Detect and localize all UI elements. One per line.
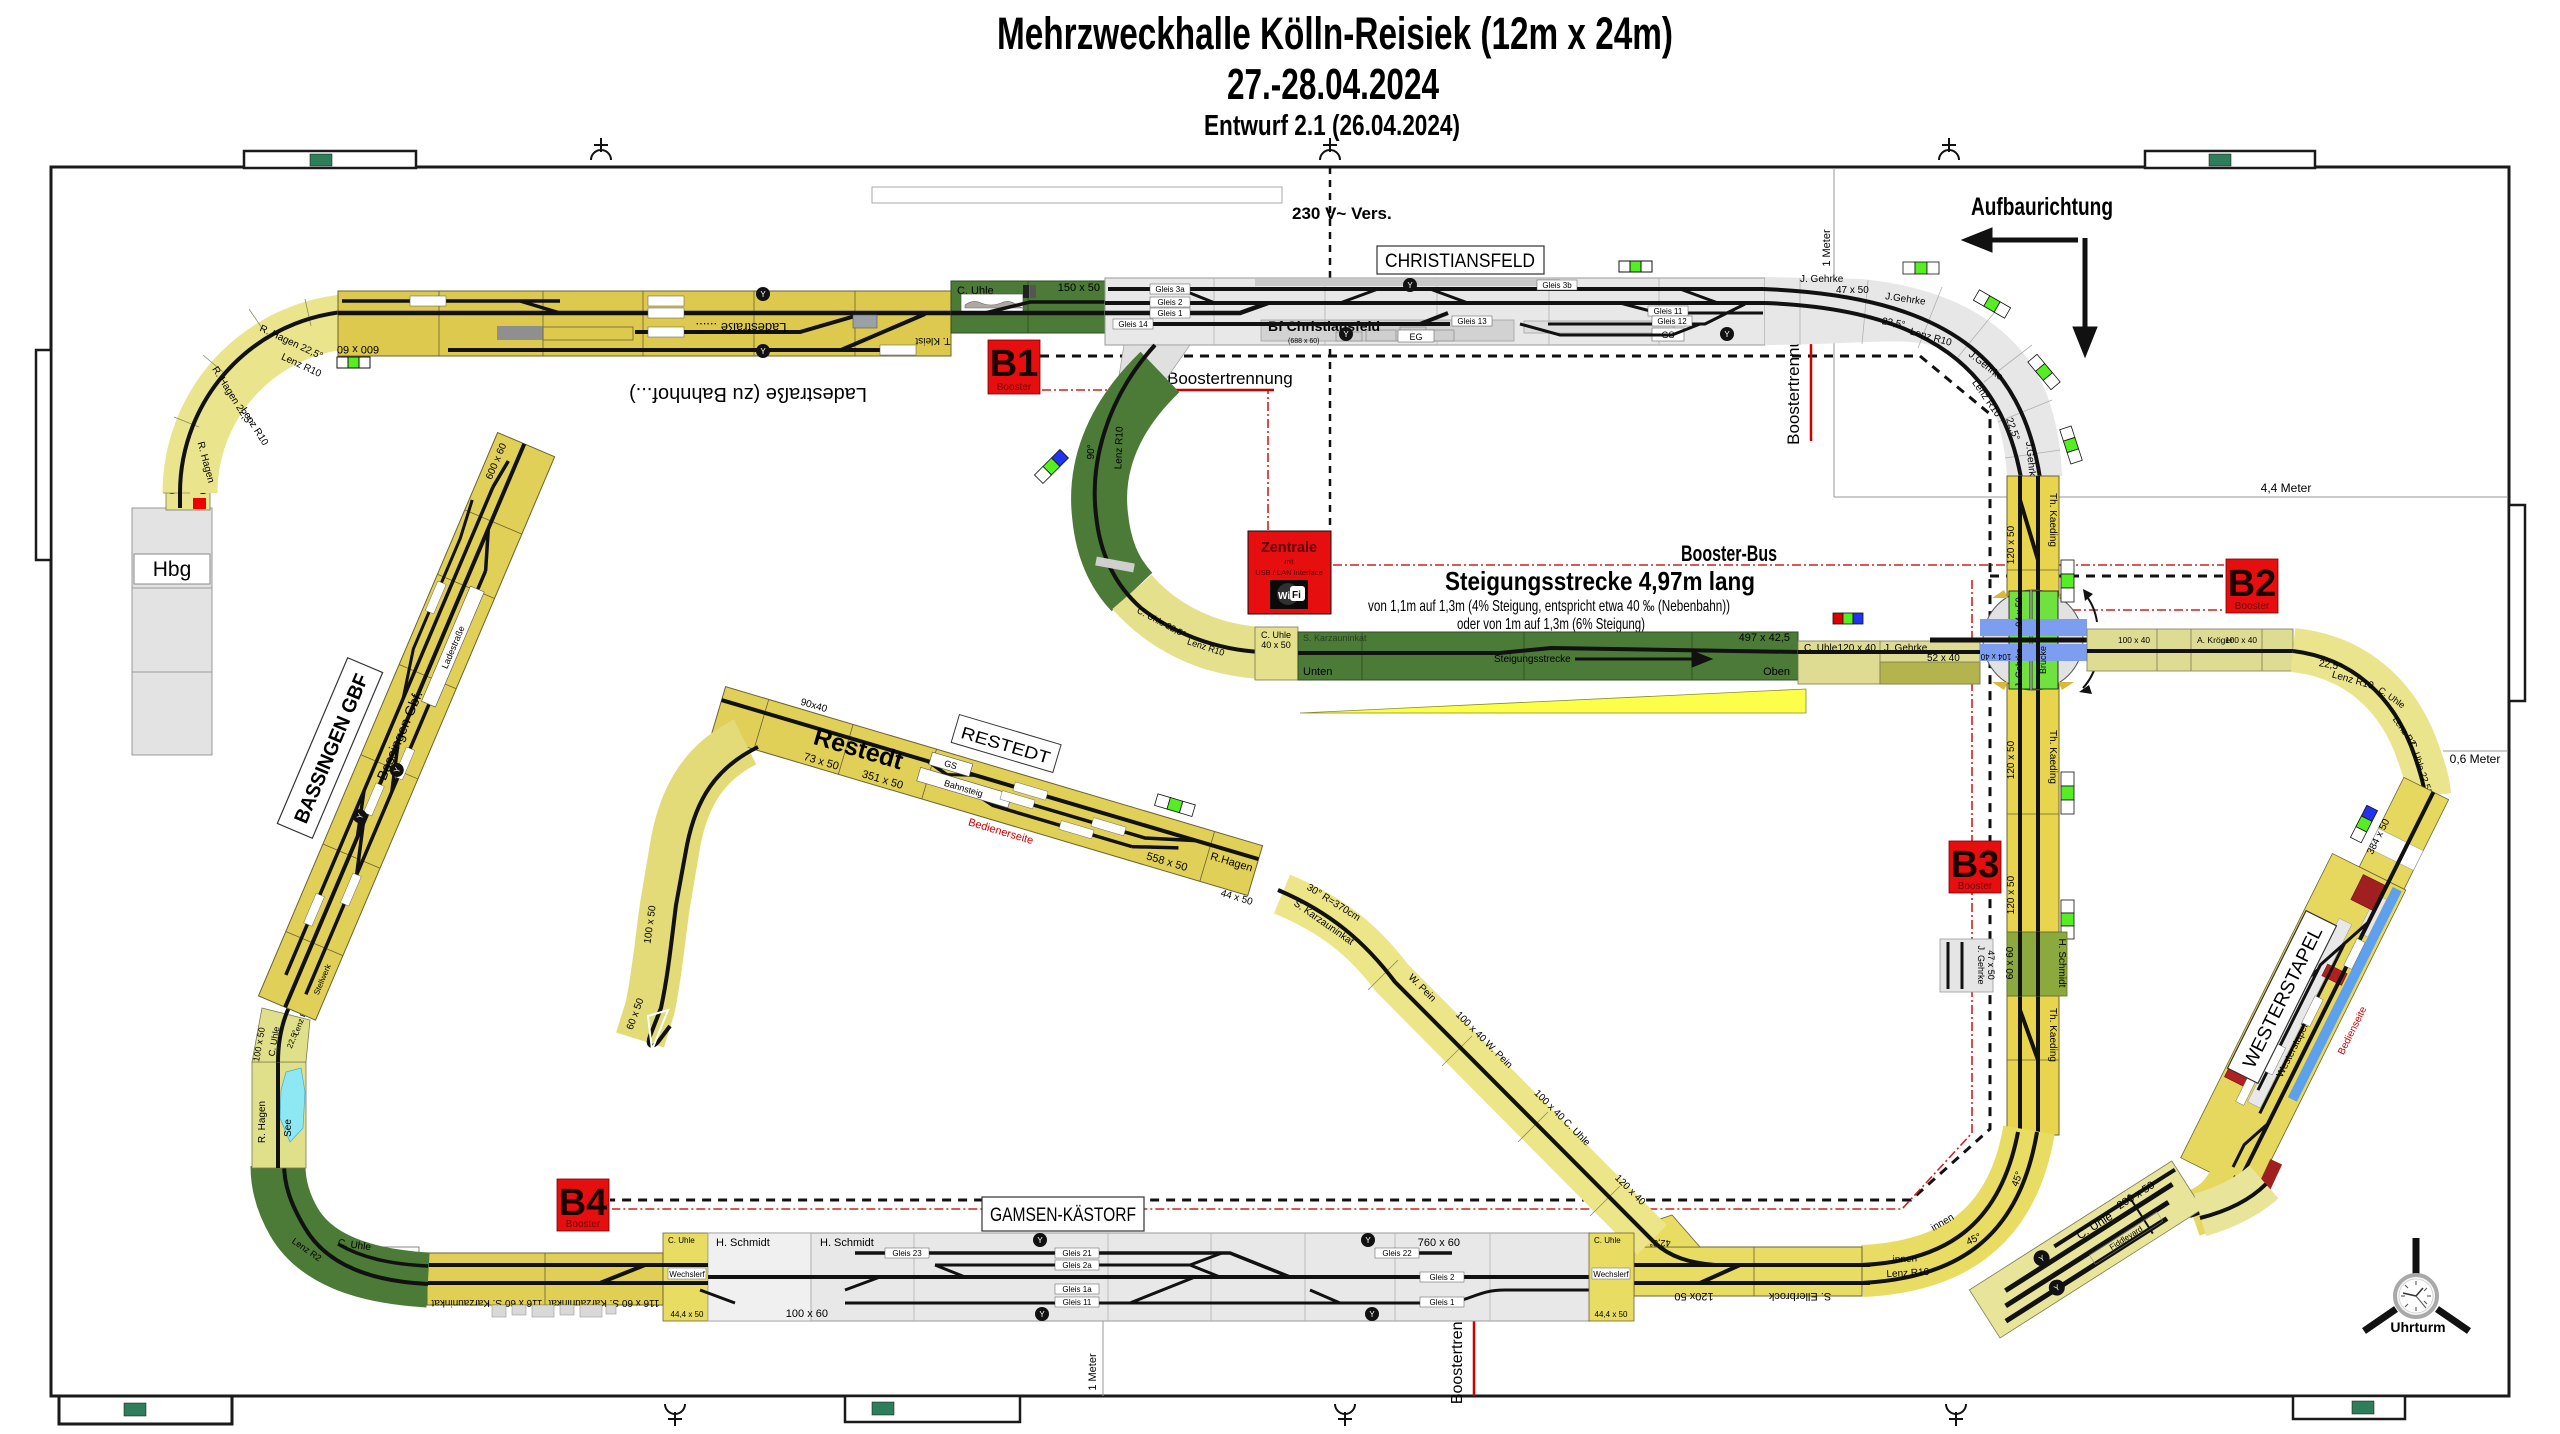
svg-text:60 x 60: 60 x 60 (2005, 946, 2016, 979)
svg-text:Steigungsstrecke: Steigungsstrecke (1494, 654, 1571, 665)
svg-text:Booster: Booster (997, 382, 1032, 393)
svg-text:0,6 Meter: 0,6 Meter (2450, 752, 2501, 766)
svg-text:120 x 50: 120 x 50 (2006, 525, 2017, 564)
svg-text:R. Hagen: R. Hagen (257, 1101, 268, 1143)
svg-text:(688 x 60): (688 x 60) (1288, 338, 1320, 345)
svg-text:94 x 50: 94 x 50 (2014, 597, 2024, 627)
svg-text:100 x 40: 100 x 40 (2225, 635, 2257, 645)
svg-text:Y: Y (1039, 1310, 1045, 1319)
svg-text:497 x 42,5: 497 x 42,5 (1739, 632, 1790, 644)
svg-text:C. Uhle: C. Uhle (1261, 630, 1291, 640)
svg-text:Gleis 21: Gleis 21 (1062, 1249, 1092, 1258)
svg-text:Entwurf 2.1 (26.04.2024): Entwurf 2.1 (26.04.2024) (1204, 110, 1460, 142)
svg-text:Brücke: Brücke (2038, 646, 2048, 674)
svg-text:Wechslerf: Wechslerf (669, 1270, 705, 1279)
svg-text:Uhrturm: Uhrturm (2390, 1319, 2445, 1335)
svg-text:Y: Y (1365, 1236, 1371, 1245)
svg-text:120 x 50: 120 x 50 (2006, 740, 2017, 779)
svg-text:600 x 60: 600 x 60 (337, 343, 379, 355)
svg-text:100 x 40: 100 x 40 (2118, 635, 2150, 645)
svg-text:Y: Y (760, 290, 766, 299)
svg-text:innen: innen (1892, 1253, 1917, 1265)
svg-text:EG: EG (1409, 332, 1422, 342)
svg-text:Gleis 1a: Gleis 1a (1062, 1285, 1092, 1294)
svg-text:Boostertrennung: Boostertrennung (1167, 369, 1293, 388)
svg-text:mit: mit (1284, 559, 1293, 566)
svg-text:Gleis 3b: Gleis 3b (1542, 281, 1572, 290)
svg-text:Y: Y (760, 347, 766, 356)
svg-text:von 1,1m auf 1,3m (4% Steigung: von 1,1m auf 1,3m (4% Steigung, entspric… (1368, 598, 1730, 615)
svg-text:Y: Y (1724, 330, 1730, 339)
svg-text:Gleis 11: Gleis 11 (1063, 1298, 1092, 1307)
svg-text:CHRISTIANSFELD: CHRISTIANSFELD (1385, 251, 1535, 272)
svg-text:H. Schmidt: H. Schmidt (2056, 939, 2067, 988)
svg-text:Y: Y (1407, 281, 1413, 290)
svg-text:Y: Y (1037, 1236, 1043, 1245)
svg-text:Gleis 2a: Gleis 2a (1062, 1261, 1092, 1270)
svg-text:Lenz R10: Lenz R10 (1113, 426, 1126, 470)
svg-text:120x 50: 120x 50 (1674, 1290, 1713, 1302)
svg-text:120 x 50: 120 x 50 (2006, 875, 2017, 914)
svg-text:Wi: Wi (1278, 591, 1290, 602)
svg-text:Gleis 1: Gleis 1 (1158, 309, 1183, 318)
svg-text:Th. Kaeding: Th. Kaeding (2047, 1008, 2058, 1062)
svg-text:C. Uhle: C. Uhle (668, 1236, 695, 1245)
svg-text:J. Gehrke: J. Gehrke (1976, 945, 1986, 984)
svg-text:230 V~ Vers.: 230 V~ Vers. (1292, 204, 1392, 223)
svg-text:104 x 40: 104 x 40 (1980, 652, 2011, 661)
svg-text:1 Meter: 1 Meter (1087, 1353, 1099, 1391)
svg-text:Zentrale: Zentrale (1261, 539, 1317, 556)
svg-text:Booster: Booster (1958, 881, 1993, 892)
svg-text:J. Gehrke: J. Gehrke (1800, 274, 1844, 285)
svg-text:B4: B4 (559, 1182, 608, 1224)
svg-text:Ladestraße ......: Ladestraße ...... (695, 320, 786, 335)
svg-text:4,4 Meter: 4,4 Meter (2261, 481, 2312, 495)
svg-text:B2: B2 (2228, 563, 2277, 605)
svg-text:oder von 1m auf 1,3m (6% Steig: oder von 1m auf 1,3m (6% Steigung) (1457, 616, 1645, 633)
svg-text:47 x 50: 47 x 50 (1836, 285, 1869, 296)
svg-text:44,4 x 50: 44,4 x 50 (671, 1310, 704, 1319)
svg-text:90°: 90° (1086, 444, 1098, 459)
svg-text:47 x 50: 47 x 50 (1986, 950, 1996, 980)
svg-text:Gleis 23: Gleis 23 (892, 1249, 922, 1258)
svg-text:Gleis 11: Gleis 11 (1654, 307, 1683, 316)
svg-text:GAMSEN-KÄSTORF: GAMSEN-KÄSTORF (990, 1205, 1136, 1226)
svg-text:Y: Y (1343, 330, 1349, 339)
svg-text:760 x 60: 760 x 60 (1418, 1237, 1460, 1249)
svg-text:See: See (283, 1119, 294, 1137)
svg-text:Gleis 14: Gleis 14 (1118, 320, 1148, 329)
svg-text:150 x 50: 150 x 50 (1058, 282, 1100, 294)
svg-text:H. Schmidt: H. Schmidt (716, 1237, 770, 1249)
svg-text:100 x 60: 100 x 60 (786, 1308, 828, 1320)
svg-text:C. Uhle: C. Uhle (1594, 1236, 1621, 1245)
svg-text:H. Schmidt: H. Schmidt (820, 1237, 874, 1249)
svg-text:Gleis 2: Gleis 2 (1158, 298, 1183, 307)
svg-text:Oben: Oben (1763, 666, 1790, 678)
svg-text:T. Kleist: T. Kleist (915, 335, 950, 346)
svg-text:S. Karzauninkat: S. Karzauninkat (1303, 633, 1367, 643)
svg-text:Booster: Booster (566, 1219, 601, 1230)
svg-text:Hbg: Hbg (153, 558, 192, 581)
svg-text:Y: Y (1369, 1310, 1375, 1319)
svg-text:B3: B3 (1951, 844, 2000, 886)
svg-text:44,4 x 50: 44,4 x 50 (1595, 1310, 1628, 1319)
svg-text:S. Ellerbrock: S. Ellerbrock (1768, 1290, 1831, 1302)
svg-text:Booster-Bus: Booster-Bus (1681, 541, 1777, 566)
svg-text:J. Gehrke: J. Gehrke (2014, 648, 2024, 687)
svg-text:Gleis 1: Gleis 1 (1430, 1298, 1455, 1307)
svg-text:B1: B1 (990, 343, 1039, 385)
svg-text:Wechslerf: Wechslerf (1593, 1270, 1629, 1279)
svg-text:Aufbaurichtung: Aufbaurichtung (1971, 193, 2113, 221)
svg-text:Th. Kaeding: Th. Kaeding (2047, 730, 2058, 784)
svg-text:Th. Kaeding: Th. Kaeding (2047, 493, 2058, 547)
svg-text:Steigungsstrecke 4,97m lang: Steigungsstrecke 4,97m lang (1445, 566, 1755, 596)
svg-text:Lenz R10: Lenz R10 (1886, 1267, 1930, 1280)
svg-text:Gleis 3a: Gleis 3a (1155, 285, 1185, 294)
svg-text:Fi: Fi (1292, 590, 1301, 601)
svg-text:Gleis 12: Gleis 12 (1657, 317, 1687, 326)
svg-text:Mehrzweckhalle Kölln-Reisiek (: Mehrzweckhalle Kölln-Reisiek (12m x 24m) (997, 8, 1673, 59)
svg-text:Ladestraße (zu Bahnhof...): Ladestraße (zu Bahnhof...) (629, 383, 867, 405)
svg-text:Gleis 2: Gleis 2 (1430, 1273, 1455, 1282)
svg-text:Booster: Booster (2235, 601, 2270, 612)
svg-text:27.-28.04.2024: 27.-28.04.2024 (1227, 60, 1439, 109)
svg-text:Gleis 13: Gleis 13 (1457, 317, 1487, 326)
svg-text:1 Meter: 1 Meter (1821, 229, 1833, 267)
svg-text:USB / LAN Interface: USB / LAN Interface (1255, 568, 1323, 577)
svg-text:Unten: Unten (1303, 666, 1332, 678)
svg-text:40 x 50: 40 x 50 (1261, 640, 1291, 650)
svg-text:Gleis 22: Gleis 22 (1382, 1249, 1412, 1258)
